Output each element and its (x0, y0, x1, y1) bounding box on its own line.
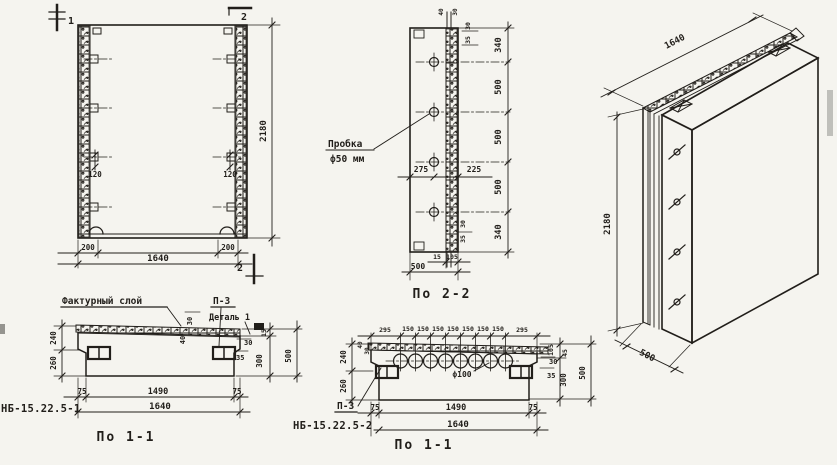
svg-text:500: 500 (494, 179, 504, 194)
section-number: 1 (68, 16, 74, 27)
svg-text:500: 500 (637, 348, 656, 364)
panel-drawing: 1 2 2 120 120 (0, 0, 837, 465)
dim-200-right: 200 (221, 243, 235, 252)
svg-text:75: 75 (232, 387, 241, 396)
svg-text:260: 260 (339, 379, 348, 393)
dim-hole-offsets: 275 225 (398, 165, 492, 180)
svg-text:500: 500 (494, 79, 504, 94)
svg-text:15: 15 (433, 253, 441, 261)
plug-size-label: ф50 мм (330, 154, 365, 165)
svg-text:120: 120 (88, 170, 102, 179)
svg-text:120: 120 (223, 170, 237, 179)
svg-text:225: 225 (467, 165, 482, 174)
caption-section-1-1: По 1-1 (395, 438, 454, 453)
svg-text:30: 30 (549, 358, 557, 366)
svg-text:295: 295 (516, 326, 528, 334)
panel-outline (78, 25, 247, 238)
svg-text:500: 500 (494, 129, 504, 144)
svg-text:1490: 1490 (446, 403, 466, 413)
dim-2180: 2180 (259, 120, 269, 142)
svg-text:240: 240 (49, 331, 58, 345)
facing-strip-left (79, 26, 89, 237)
svg-text:40: 40 (357, 341, 364, 349)
dim-1640: 1640 (147, 254, 169, 264)
texture-layer-label: Фактурный слой (62, 296, 142, 307)
dim-height: 2180 (248, 18, 280, 246)
dim-rebar: 40 (438, 8, 445, 16)
svg-text:30: 30 (464, 22, 472, 30)
section-mark-2-top: 2 (229, 8, 251, 23)
dim-1640: 1640 (447, 420, 469, 430)
svg-text:260: 260 (49, 356, 58, 370)
svg-text:340: 340 (494, 224, 504, 239)
section-mark-1: 1 (49, 5, 74, 30)
scan-smudge (0, 324, 5, 334)
svg-text:30: 30 (186, 317, 194, 325)
svg-text:500: 500 (578, 366, 587, 380)
panel-main-face (692, 58, 818, 343)
section-1-1-mid-view: 295 150 150 150 150 150 150 150 295 ф100… (293, 325, 596, 453)
svg-text:150: 150 (417, 325, 429, 333)
caption-section-1-1: По 1-1 (97, 430, 156, 445)
svg-text:150: 150 (402, 325, 414, 333)
part-mark-label: НБ-15.22.5-1 (1, 403, 80, 415)
dim-bottom: 75 1490 75 1640 (64, 378, 250, 418)
body-outline (78, 333, 240, 376)
svg-text:105: 105 (446, 253, 458, 261)
svg-text:240: 240 (339, 350, 348, 364)
svg-text:75: 75 (528, 403, 537, 412)
svg-text:300: 300 (255, 354, 264, 368)
dim-1640: 1640 (149, 402, 171, 412)
dim-right-column: 15 300 500 (236, 321, 302, 382)
section-mark-2-bottom: 2 (237, 255, 263, 283)
svg-text:150: 150 (432, 325, 444, 333)
lifting-loop (220, 227, 234, 234)
svg-text:150: 150 (477, 325, 489, 333)
detail-label: Деталь 1 (209, 313, 250, 323)
svg-text:500: 500 (284, 349, 293, 363)
scan-smudge (827, 90, 833, 136)
svg-text:30: 30 (459, 220, 467, 228)
svg-text:75: 75 (77, 387, 86, 396)
leader-line (245, 322, 250, 334)
svg-text:30: 30 (364, 347, 371, 355)
section-number: 2 (241, 12, 247, 23)
facing-strip-right (236, 26, 246, 237)
svg-text:35: 35 (547, 372, 555, 380)
part-mark-label: НБ-15.22.5-2 (293, 420, 372, 432)
dim-bottom: 75 1490 75 1640 (358, 402, 548, 436)
svg-text:35: 35 (236, 354, 244, 362)
dim-rebar: 30 (452, 8, 459, 16)
svg-text:150: 150 (447, 325, 459, 333)
lifting-opening (670, 100, 692, 112)
svg-text:30: 30 (244, 339, 252, 347)
svg-text:150: 150 (492, 325, 504, 333)
dim-iso-height: 2180 (603, 109, 643, 336)
svg-text:75: 75 (370, 403, 379, 412)
svg-text:150: 150 (462, 325, 474, 333)
section-1-1-left-view: Фактурный слой П-3 Деталь 1 30 40 240 26… (1, 296, 302, 445)
facing-layer (76, 325, 240, 336)
svg-text:35: 35 (459, 235, 467, 243)
lifting-loop (89, 227, 103, 234)
leader-line (374, 114, 429, 149)
svg-text:275: 275 (414, 165, 429, 174)
front-view: 1 2 2 120 120 (49, 5, 280, 283)
dim-bottom: 200 200 1640 (58, 240, 252, 268)
svg-text:2180: 2180 (603, 213, 613, 235)
plug-label: Пробка (328, 139, 363, 150)
hole-diameter-label: ф100 (452, 370, 471, 379)
svg-text:40: 40 (179, 336, 187, 344)
caption-section-2-2: По 2-2 (413, 287, 472, 302)
svg-text:300: 300 (559, 373, 568, 387)
connector-marks (84, 28, 241, 211)
svg-text:1490: 1490 (148, 387, 168, 397)
blueprint-sheet: 1 2 2 120 120 (0, 0, 837, 465)
svg-text:1640: 1640 (663, 33, 687, 52)
dim-iso-depth: 500 (615, 324, 690, 373)
edge-connectors (669, 145, 685, 309)
p3-label: П-3 (213, 296, 230, 307)
svg-text:15: 15 (260, 329, 268, 337)
isometric-view: 1640 2180 500 (601, 13, 818, 373)
section-2-2-view: 40 30 30 35 340 500 500 500 340 Пробка ф… (326, 8, 514, 302)
svg-text:35: 35 (464, 36, 472, 44)
plug-callout: Пробка ф50 мм (326, 114, 429, 165)
svg-text:295: 295 (379, 326, 391, 334)
svg-text:45: 45 (561, 349, 569, 357)
svg-text:105: 105 (547, 344, 555, 356)
dim-500: 500 (411, 262, 426, 271)
dim-bottom: 15 105 500 (402, 252, 470, 280)
dim-200-left: 200 (81, 243, 95, 252)
leader-line (167, 307, 181, 326)
svg-text:340: 340 (494, 37, 504, 52)
